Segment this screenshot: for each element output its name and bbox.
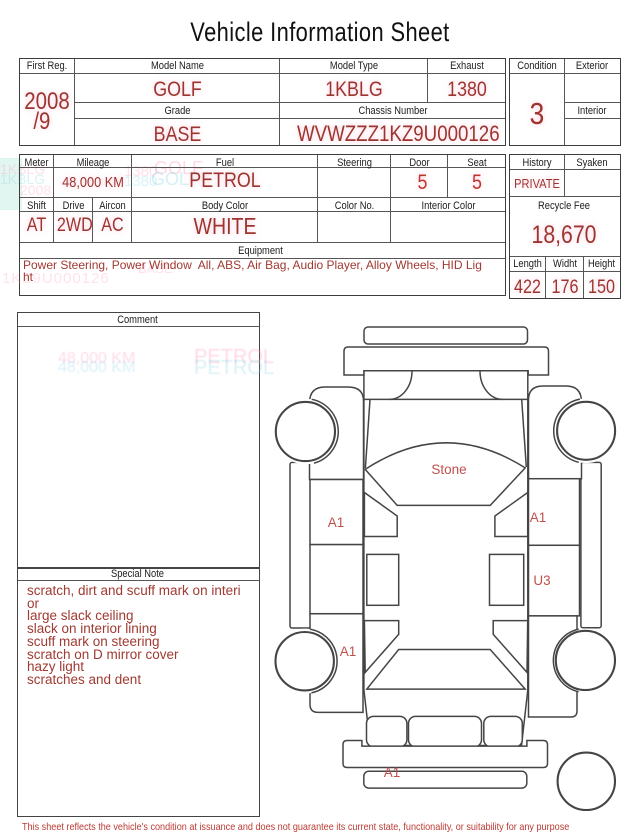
svg-text:U3: U3 xyxy=(533,573,550,588)
svg-text:A1: A1 xyxy=(328,515,345,530)
svg-text:A1: A1 xyxy=(530,510,547,525)
svg-text:Stone: Stone xyxy=(431,462,466,477)
svg-text:A1: A1 xyxy=(384,765,401,780)
svg-text:A1: A1 xyxy=(340,644,357,659)
